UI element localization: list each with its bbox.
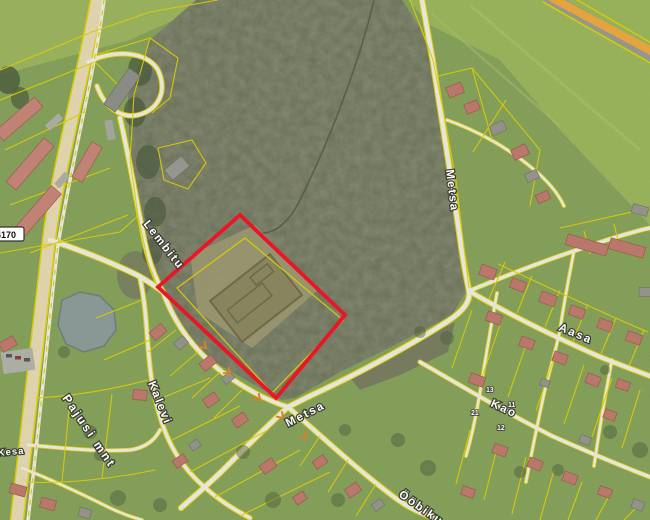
map-viewport[interactable]: Pajusi mnt Lembitu Kalevi Metsa Metsa Aa… <box>0 0 650 520</box>
aerial-map[interactable]: Pajusi mnt Lembitu Kalevi Metsa Metsa Aa… <box>0 0 650 520</box>
svg-text:4170: 4170 <box>0 230 16 240</box>
svg-text:13: 13 <box>486 387 494 394</box>
road-number-badge: 4170 <box>0 227 24 241</box>
svg-text:11: 11 <box>508 402 516 409</box>
svg-text:12: 12 <box>497 425 505 432</box>
svg-text:21: 21 <box>471 410 479 417</box>
